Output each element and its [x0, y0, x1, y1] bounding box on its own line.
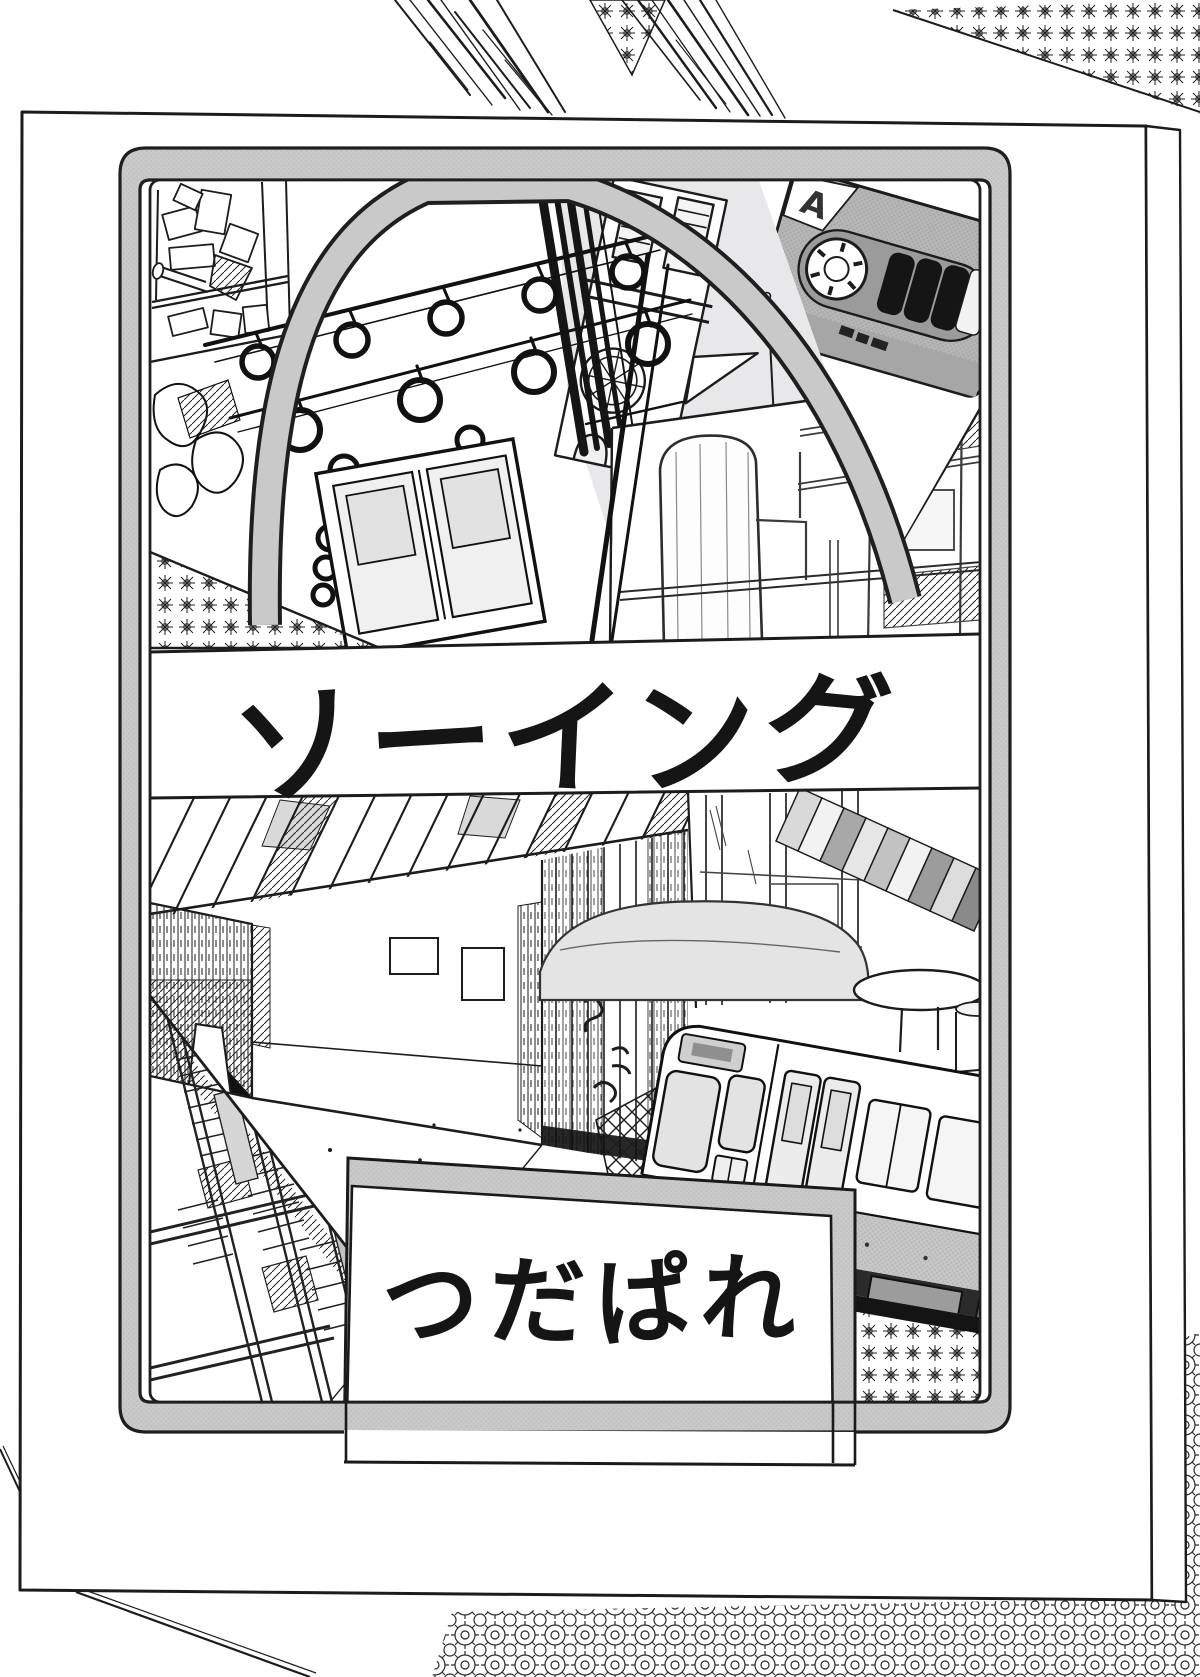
- background-pattern-top-center: [590, 0, 665, 75]
- background-light-beams: [395, 0, 785, 118]
- cover-author: つだぱれ: [352, 1252, 839, 1352]
- cover-collage-illustration: A: [0, 0, 1200, 1677]
- cover-title: ソーイング: [148, 665, 983, 813]
- background-pattern-top-right: [893, 0, 1200, 114]
- manga-cover-page: A: [0, 0, 1200, 1677]
